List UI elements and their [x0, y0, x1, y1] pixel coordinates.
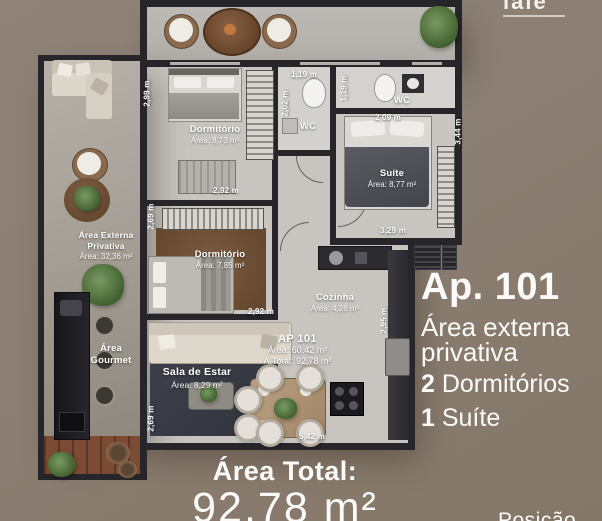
dim-dorm2-height: 2,69 m [147, 187, 156, 247]
deck-plant [48, 452, 75, 477]
label-dormitorio2: Dormitório Área: 7,85 m² [176, 249, 264, 272]
dining-centerpiece [274, 398, 297, 419]
dim-wc2-height: 1,19 m [340, 59, 349, 119]
position-text-partial: Posição [498, 509, 602, 521]
unit-total: Á.Total: 92,78 m² [240, 356, 355, 367]
room-name: Suíte [347, 168, 437, 180]
kitchen-counter-top [318, 246, 392, 270]
wall-top [140, 0, 462, 7]
wall-dorm2-right [272, 206, 278, 320]
label-sala: Sala de Estar Área: 8,29 m² [148, 366, 246, 391]
dim-suite-width: 3,29 m [363, 226, 423, 235]
terrace-chair-cushion [169, 18, 193, 42]
room-name: Dormitório [172, 124, 258, 136]
bed-pillow [153, 262, 166, 283]
label-cozinha: Cozinha Área: 4,26 m² [298, 292, 372, 315]
room-area: Área: 32,36 m² [58, 252, 154, 262]
room-name: Dormitório [176, 249, 264, 261]
deck-bowl [118, 461, 137, 478]
label-dormitorio1: Dormitório Área: 8,73 m² [172, 124, 258, 147]
label-area-externa: Área Externa Privativa Área: 32,36 m² [58, 230, 154, 262]
unit-area: Área: 60,42 m² [240, 345, 355, 356]
total-area-label: Área Total: [143, 456, 427, 487]
bed-pillow [351, 120, 386, 137]
burner [349, 387, 358, 396]
sliding-door [412, 62, 442, 65]
room-name: WC [290, 121, 326, 133]
bed-pillow [153, 287, 166, 308]
feature-label: Dormitórios [435, 370, 570, 398]
dorm2-wardrobe [162, 208, 264, 230]
burner [335, 401, 344, 410]
label-wc2: WC [386, 95, 418, 107]
room-area: Área: 4,26 m² [298, 304, 372, 314]
terrace-chair-cushion [267, 18, 291, 42]
feature-label: Suíte [435, 404, 500, 432]
dim-dorm1-width: 2,92 m [196, 186, 256, 195]
wc2-sink [402, 74, 424, 93]
room-area: Área: 8,77 m² [347, 180, 437, 190]
brand-tagline-bar [503, 15, 565, 17]
sofa-pillow [57, 63, 73, 78]
dim-suite-height: 3,44 m [454, 102, 463, 162]
label-area-gourmet: Área Gourmet [76, 343, 146, 368]
suite-wardrobe [437, 146, 455, 228]
bed-headboard [169, 69, 239, 75]
dining-chair [296, 364, 324, 392]
brand-logo-partial: iaie [497, 0, 573, 13]
table-plant [74, 186, 100, 211]
sofa-pillow [158, 334, 176, 350]
feature-dormitorios: 2 Dormitórios [421, 371, 596, 397]
room-name: Cozinha [298, 292, 372, 304]
bar-stool [94, 315, 115, 336]
sofa-pillow [75, 62, 91, 76]
suite-bed [344, 116, 432, 210]
outdoor-round-chair-cushion [77, 152, 101, 175]
apartment-title: Ap. 101 [421, 266, 596, 309]
dim-sala-height: 2,69 m [147, 389, 156, 449]
label-suite: Suíte Área: 8,77 m² [347, 168, 437, 191]
floorplan-poster: iaie [0, 0, 602, 521]
sliding-door [170, 62, 240, 65]
dorm1-bed [168, 68, 242, 122]
kitchen-sink [329, 251, 343, 265]
room-name: Sala de Estar [148, 366, 246, 380]
bar-stool [94, 385, 115, 406]
bed-pillow [174, 77, 201, 88]
room-name: WC [386, 95, 418, 107]
terrace-table-bowl [224, 24, 236, 35]
wc1-toilet [302, 78, 326, 108]
room-name: Área [76, 343, 146, 355]
bed-pillow [207, 77, 234, 88]
info-panel: Ap. 101 Área externa privativa 2 Dormitó… [421, 266, 596, 431]
wall-dorm1-bottom [140, 200, 278, 206]
feature-count: 1 [421, 404, 435, 432]
dim-sala-width: 5,42 m [282, 432, 342, 441]
room-name: Área Externa [58, 230, 154, 241]
wc2-sink-basin [407, 78, 419, 89]
label-wc1: WC [290, 121, 326, 133]
wall-suite-left [330, 108, 336, 245]
dim-wc1-height: 2,02 m [281, 74, 290, 134]
unit-name: AP 101 [240, 333, 355, 345]
kitchen-item [355, 252, 367, 264]
gourmet-grill [59, 412, 85, 432]
burner [335, 387, 344, 396]
subtitle-line2: privativa [421, 340, 596, 365]
kitchen-fridge [385, 338, 410, 376]
dim-wc2-width: 2,09 m [358, 113, 418, 122]
dining-chair [256, 364, 284, 392]
subtitle-line1: Área externa [421, 315, 596, 340]
room-name: Privativa [58, 241, 154, 252]
bed-pillow [390, 120, 425, 137]
total-area-banner: Área Total: 92,78 m² [143, 456, 427, 521]
room-area: Área: 7,85 m² [176, 261, 264, 271]
feature-count: 2 [421, 370, 435, 398]
wall-suite-bottom [330, 238, 462, 245]
brand-logo-text: iaie [503, 0, 548, 13]
room-name: Gourmet [76, 355, 146, 367]
room-area: Área: 8,73 m² [172, 136, 258, 146]
wall-external-left [38, 55, 44, 480]
dim-cozinha-height: 2,95 m [380, 291, 389, 351]
dining-chair [256, 419, 284, 447]
gourmet-sink [60, 300, 82, 316]
kitchen-cooktop [330, 382, 364, 416]
room-area: Área: 8,29 m² [148, 380, 246, 391]
bed-blanket [169, 93, 239, 119]
apartment-subtitle: Área externa privativa [421, 315, 596, 364]
feature-suite: 1 Suíte [421, 405, 596, 431]
total-area-value: 92,78 m² [143, 487, 427, 521]
burner [349, 401, 358, 410]
unit-stamp: AP 101 Área: 60,42 m² Á.Total: 92,78 m² [240, 333, 355, 368]
terrace-plant [420, 6, 458, 48]
dim-dorm2-width: 2,92 m [231, 307, 291, 316]
dim-dorm1-height: 2,99 m [143, 64, 152, 124]
